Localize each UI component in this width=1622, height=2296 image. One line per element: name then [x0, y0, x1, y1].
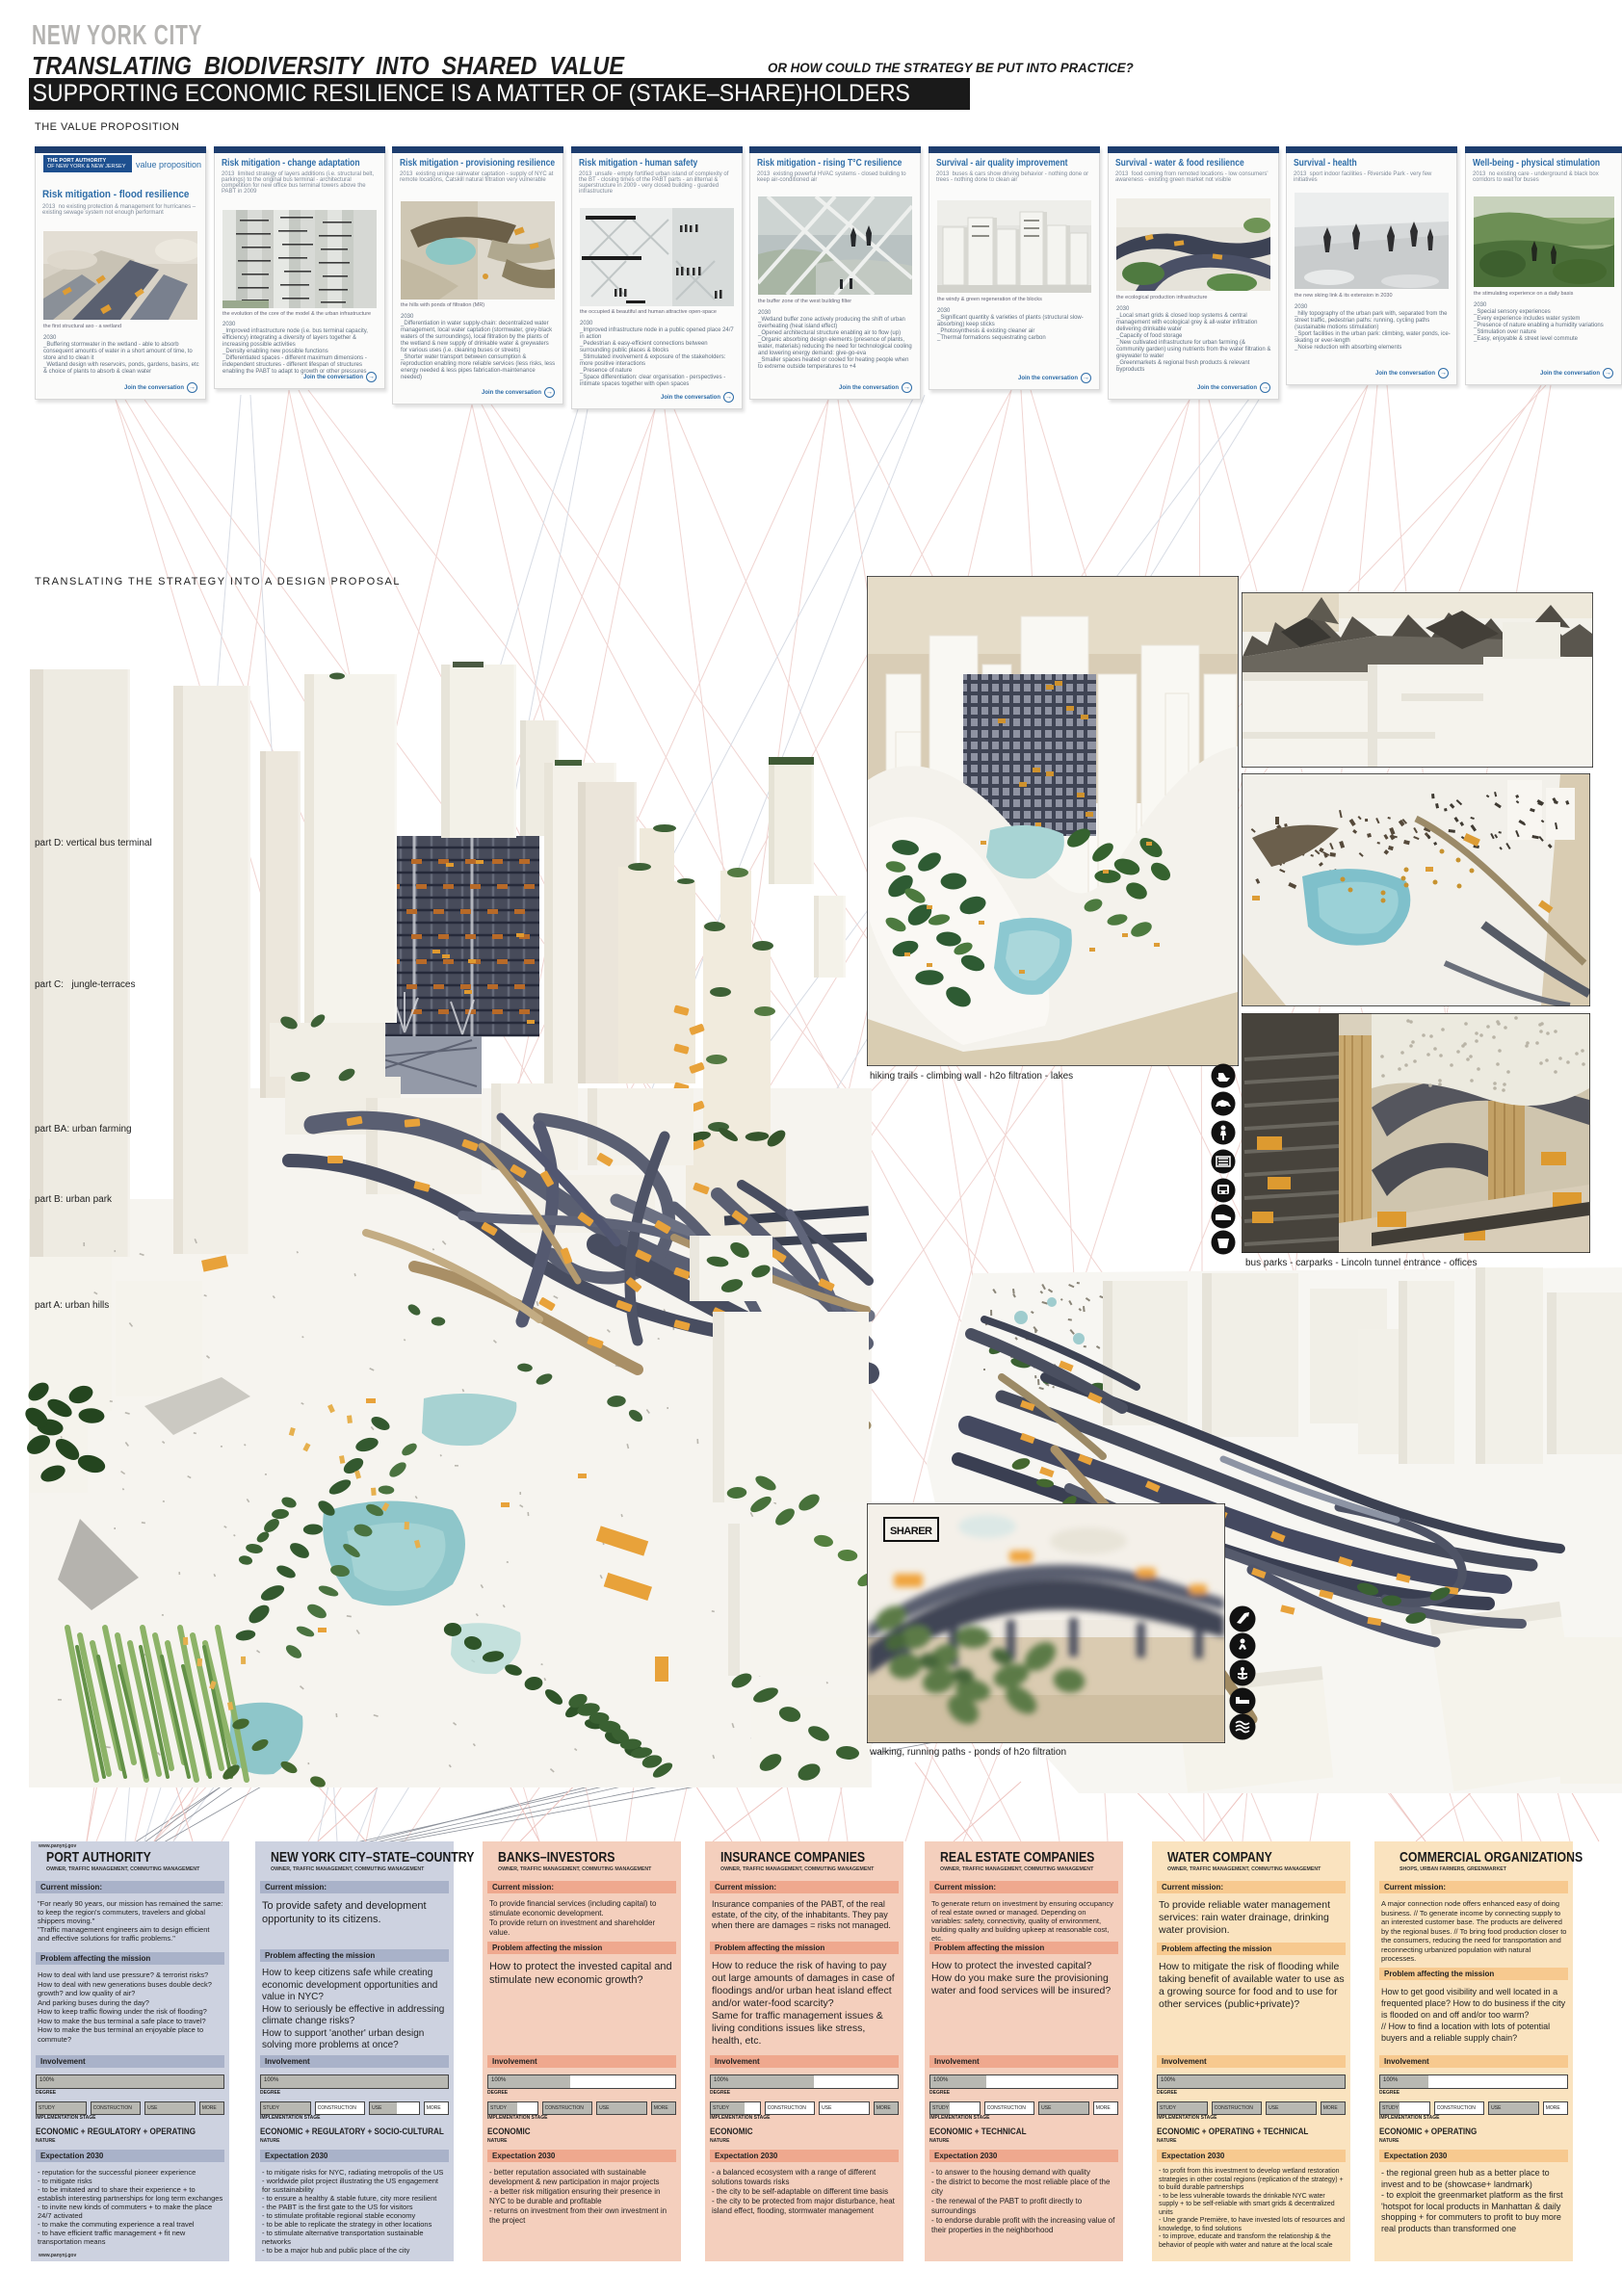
svg-text:SHARER: SHARER [890, 1526, 932, 1537]
